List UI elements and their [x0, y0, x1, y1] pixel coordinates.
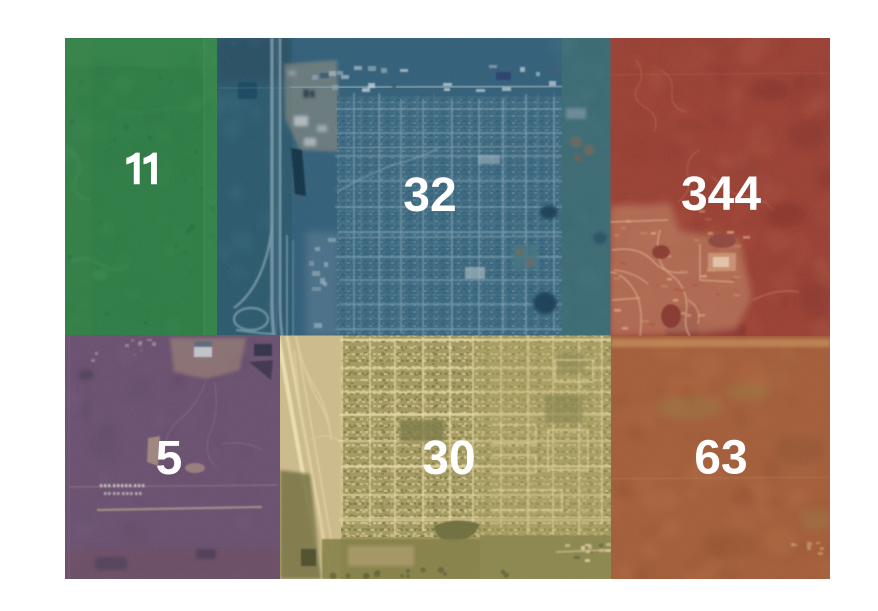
svg-text:30: 30	[422, 432, 475, 485]
svg-text:344: 344	[681, 168, 761, 221]
svg-text:32: 32	[403, 169, 456, 222]
svg-text:63: 63	[694, 432, 747, 485]
svg-text:5: 5	[156, 432, 183, 485]
